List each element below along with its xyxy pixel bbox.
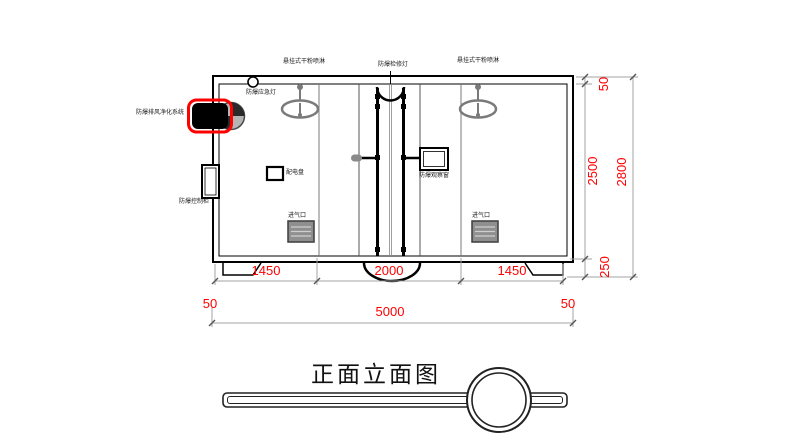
exhaust-fan-icon (189, 100, 245, 132)
label-inspection-lamp: 防爆检修灯 (373, 62, 413, 69)
label-sprinkler-left: 悬挂式干粉喷淋 (276, 59, 332, 66)
dim-right-roof: 50 (597, 69, 611, 99)
label-control-cabinet: 防爆控制柜 (174, 199, 214, 206)
dim-wall-right: 50 (553, 297, 583, 311)
observation-window-icon (420, 148, 448, 170)
dim-bottom-right: 1450 (482, 264, 542, 278)
label-sprinkler-right: 悬挂式干粉喷淋 (450, 58, 506, 65)
dim-bottom-center: 2000 (359, 264, 419, 278)
dim-bottom-total: 5000 (360, 305, 420, 319)
label-exhaust-system: 防爆排风净化系统 (133, 110, 187, 117)
air-inlet-left-icon (288, 221, 314, 242)
label-air-inlet-left: 进气口 (288, 213, 310, 220)
label-air-inlet-right: 进气口 (472, 213, 494, 220)
dim-bottom-left: 1450 (236, 264, 296, 278)
drawing-title: 正面立面图 (300, 355, 452, 389)
dim-right-total: 2800 (615, 142, 629, 202)
label-emergency-lamp: 防爆应急灯 (241, 90, 281, 97)
dim-right-body: 2500 (586, 141, 600, 201)
control-cabinet-icon (202, 165, 219, 198)
emergency-lamp-icon (248, 77, 258, 87)
dim-wall-left: 50 (195, 297, 225, 311)
elevation-drawing: 悬挂式干粉喷淋 防爆检修灯 悬挂式干粉喷淋 防爆应急灯 防爆排风净化系统 防爆控… (0, 0, 800, 445)
dim-right-base: 250 (598, 245, 612, 289)
label-observation-window: 防爆观察窗 (417, 173, 451, 180)
distribution-panel-icon (267, 167, 283, 180)
label-distribution-panel: 配电盘 (286, 170, 308, 177)
air-inlet-right-icon (472, 221, 498, 242)
